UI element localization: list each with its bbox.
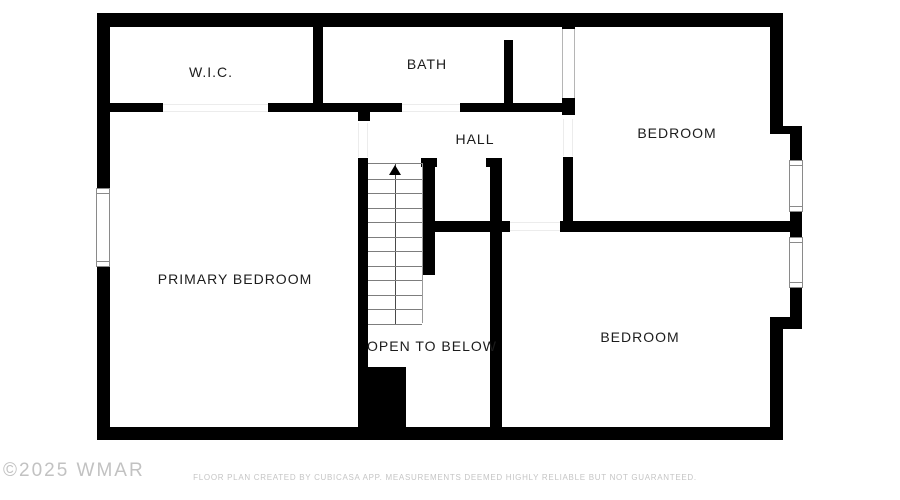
stair-tread	[368, 208, 422, 209]
stair-tread	[368, 237, 422, 238]
stair-tread	[368, 266, 422, 267]
stair-tread	[368, 280, 422, 281]
door-bedroom-bottom	[510, 222, 560, 231]
wall-stairwell-block	[358, 367, 406, 440]
door-bedroom-top	[563, 119, 573, 156]
stair-tread	[368, 179, 422, 180]
window-icon-right-bottom	[789, 237, 803, 288]
stair-tread	[368, 193, 422, 194]
wall-outer-left-upper	[97, 13, 110, 188]
room-label-bath: BATH	[407, 56, 447, 72]
wall-block-bath-bedroom	[562, 98, 575, 115]
wall-bath-stub	[504, 40, 513, 107]
room-label-wic: W.I.C.	[189, 64, 233, 80]
door-wic	[163, 104, 268, 112]
window-icon-left	[96, 188, 110, 267]
wall-right-bump-1	[790, 126, 802, 160]
wall-outer-top	[97, 13, 783, 27]
stair-tread	[368, 295, 422, 296]
staircase	[368, 163, 423, 323]
wall-wic-bath-divider	[313, 20, 323, 112]
stair-tread	[368, 324, 422, 325]
wall-primary-stub	[358, 112, 370, 121]
stair-centerline	[395, 164, 396, 324]
room-label-bedroom-bottom: BEDROOM	[600, 329, 679, 345]
wall-horizontal-a	[110, 103, 163, 112]
wall-outer-right-bottom	[770, 317, 783, 440]
room-label-hall: HALL	[455, 131, 494, 147]
room-label-primary-bedroom: PRIMARY BEDROOM	[158, 271, 313, 287]
opening-bath-bedroom	[562, 29, 575, 98]
disclaimer-text: FLOOR PLAN CREATED BY CUBICASA APP. MEAS…	[0, 473, 890, 482]
wall-cap-bath-bedroom	[562, 20, 575, 29]
wall-outer-bottom	[97, 427, 783, 440]
stair-tread	[368, 309, 422, 310]
door-primary-bedroom	[358, 123, 368, 157]
floor-plan: W.I.C. BATH BEDROOM HALL PRIMARY BEDROOM…	[0, 0, 900, 500]
wall-cap-nook-right	[486, 158, 502, 167]
wall-bedroom-divider-right	[560, 221, 802, 232]
wall-stairs-right	[423, 158, 435, 275]
wall-cap-nook-left	[421, 158, 437, 167]
wall-nook-right	[490, 158, 502, 428]
window-icon-right-top	[789, 160, 803, 212]
stair-up-arrow-icon	[389, 165, 401, 175]
door-bath	[402, 104, 460, 112]
wall-horizontal-b	[268, 103, 402, 112]
stair-tread	[368, 251, 422, 252]
wall-outer-left-lower	[97, 267, 110, 440]
room-label-bedroom-top: BEDROOM	[637, 125, 716, 141]
wall-outer-right-top	[770, 13, 783, 133]
label-open-to-below: OPEN TO BELOW	[367, 338, 497, 354]
wall-right-bump-3	[790, 288, 802, 320]
stair-tread	[368, 222, 422, 223]
